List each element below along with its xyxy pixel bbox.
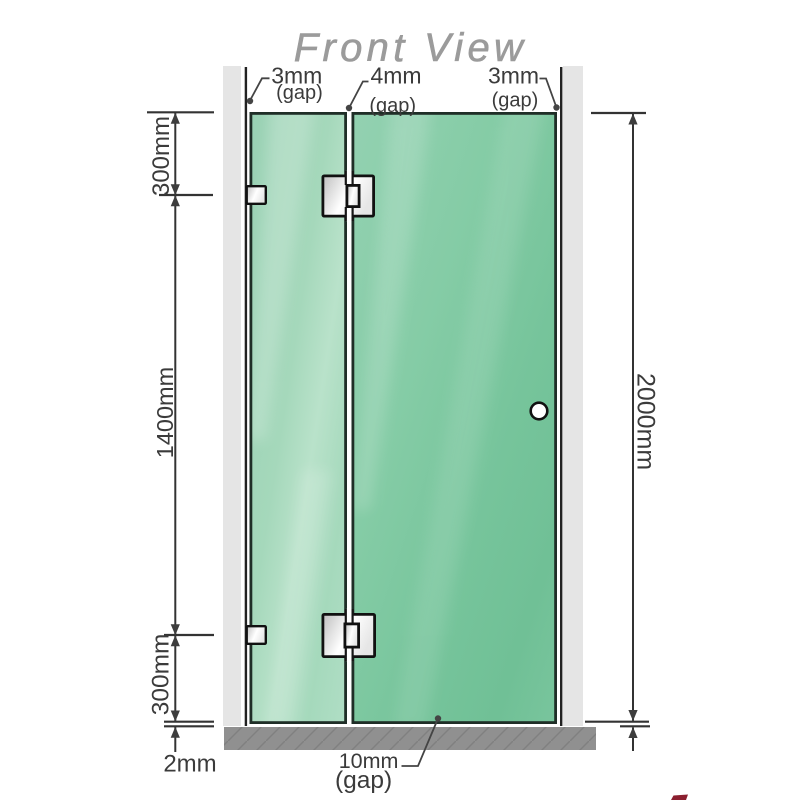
- svg-text:4mm: 4mm: [370, 63, 421, 89]
- svg-text:(gap): (gap): [369, 95, 416, 117]
- svg-text:3mm: 3mm: [488, 63, 539, 89]
- svg-text:(gap): (gap): [492, 90, 539, 112]
- svg-text:2000mm: 2000mm: [632, 373, 660, 470]
- svg-text:300mm: 300mm: [148, 634, 175, 716]
- svg-text:(gap): (gap): [276, 82, 323, 104]
- svg-text:300mm: 300mm: [148, 116, 175, 196]
- svg-text:2mm: 2mm: [163, 750, 216, 777]
- svg-text:1400mm: 1400mm: [152, 367, 178, 458]
- svg-text:(gap): (gap): [335, 767, 392, 794]
